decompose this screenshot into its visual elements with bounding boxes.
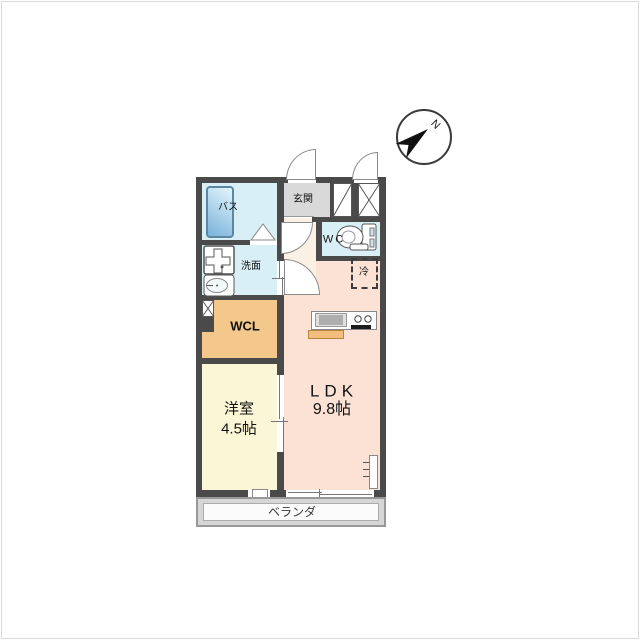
label-refrigerator: 冷 (359, 268, 369, 278)
shoe-cabinet (333, 183, 352, 217)
wall-left (196, 177, 202, 497)
label-washroom: 洗面 (241, 262, 261, 272)
wall-panel-tick (363, 462, 369, 463)
label-balcony: ベランダ (268, 506, 316, 518)
pipe-shaft-top (358, 183, 380, 217)
ldk-balcony-window-center (319, 489, 320, 497)
room-washroom (202, 245, 277, 295)
kitchen-shelf (308, 330, 344, 339)
ldk-balcony-window (320, 494, 372, 495)
label-western-room-size: 4.5帖 (221, 422, 257, 437)
pipe-shaft-wcl (202, 300, 214, 317)
label-western-room: 洋室 (224, 402, 254, 417)
label-ldk: LDK (310, 383, 358, 400)
floor-plan-canvas: N (0, 0, 640, 640)
stove-panel (351, 325, 371, 329)
label-bath: バス (218, 203, 238, 213)
washroom-sliding-door (279, 261, 280, 279)
wall-right (380, 177, 386, 497)
wall-entrance-shoe (330, 183, 333, 217)
western-sliding-door-handle (271, 421, 288, 422)
wall-under-entrance (312, 217, 386, 222)
wall-wcl-block (202, 317, 214, 332)
label-wc: WC (323, 235, 345, 246)
label-entrance: 玄関 (293, 195, 313, 205)
wall-panel-tick (363, 476, 369, 477)
label-wcl: WCL (230, 320, 260, 333)
wall-panel-fixture (369, 455, 378, 489)
western-sliding-door (283, 417, 284, 452)
washroom-sliding-door (282, 277, 283, 295)
kitchen-sink-basin (319, 315, 343, 325)
wall-wcl-western (196, 358, 284, 364)
wall-divider-lower (277, 452, 284, 490)
wall-bath-washroom (202, 240, 250, 245)
wall-washroom-wcl (196, 295, 284, 300)
label-ldk-size: 9.8帖 (313, 402, 351, 418)
wall-shoe-shaft (352, 183, 358, 217)
wall-panel-tick (363, 469, 369, 470)
ldk-balcony-window (288, 492, 322, 493)
entrance-step-line (284, 216, 314, 217)
washroom-sliding-door-handle (272, 278, 284, 279)
western-sliding-door (279, 375, 280, 419)
